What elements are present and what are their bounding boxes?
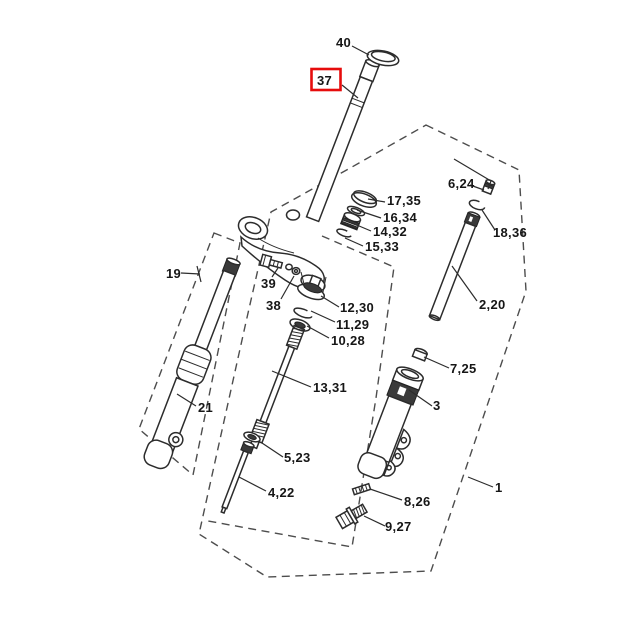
leader-10-28	[307, 326, 329, 338]
part-label-18-36[interactable]: 18,36	[493, 225, 527, 240]
rebound-rod-drawing	[217, 440, 254, 514]
part-label-8-26[interactable]: 8,26	[404, 494, 431, 509]
bearing-clip-drawing	[293, 306, 313, 320]
leader-15-33	[345, 238, 363, 246]
part-label-9-27[interactable]: 9,27	[385, 519, 412, 534]
slide-bushing-drawing	[412, 347, 428, 361]
part-label-1[interactable]: 1	[495, 480, 503, 495]
leader-40	[352, 46, 369, 55]
part-label-17-35[interactable]: 17,35	[387, 193, 421, 208]
part-label-21[interactable]: 21	[198, 400, 213, 415]
part-label-10-28[interactable]: 10,28	[331, 333, 365, 348]
part-label-16-34[interactable]: 16,34	[383, 210, 418, 225]
left-fork-drawing	[142, 254, 251, 473]
part-label-12-30[interactable]: 12,30	[340, 300, 374, 315]
part-label-37[interactable]: 37	[317, 73, 332, 88]
part-label-11-29[interactable]: 11,29	[336, 317, 369, 332]
part-label-3[interactable]: 3	[433, 398, 441, 413]
leader-16-34	[357, 210, 381, 218]
part-label-19[interactable]: 19	[166, 266, 181, 281]
part-label-38[interactable]: 38	[266, 298, 281, 313]
leader-11-29	[311, 311, 335, 322]
part-label-15-33[interactable]: 15,33	[365, 239, 399, 254]
damper-rod-drawing	[247, 325, 305, 449]
leader-4-22	[239, 477, 266, 491]
leader-12-30	[321, 296, 339, 307]
leader-2-20	[452, 266, 477, 301]
parts-diagram-canvas: 40 37 17,35 16,34 14,32 15,33 6,24 18,36…	[0, 0, 640, 640]
exploded-view-drawing: 40 37 17,35 16,34 14,32 15,33 6,24 18,36…	[0, 0, 640, 640]
part-label-2-20[interactable]: 2,20	[479, 297, 506, 312]
inner-tube-right-drawing	[428, 211, 481, 322]
leader-5-23	[262, 443, 283, 457]
outer-tube-right-drawing	[356, 364, 435, 486]
leader-9-27	[364, 516, 385, 526]
part-label-6-24[interactable]: 6,24	[448, 176, 475, 191]
part-label-40[interactable]: 40	[336, 35, 351, 50]
part-label-14-32[interactable]: 14,32	[373, 224, 407, 239]
snap-ring-drawing	[468, 198, 486, 211]
drain-bolt-drawing	[335, 501, 369, 530]
part-label-5-23[interactable]: 5,23	[284, 450, 311, 465]
part-label-4-22[interactable]: 4,22	[268, 485, 295, 500]
leader-1	[468, 477, 493, 487]
part-label-13-31[interactable]: 13,31	[313, 380, 347, 395]
leader-19	[181, 273, 200, 274]
small-clip-drawing	[336, 228, 352, 239]
part-label-7-25[interactable]: 7,25	[450, 361, 477, 376]
leader-8-26	[370, 489, 402, 500]
leader-7-25	[424, 357, 449, 368]
part-label-39[interactable]: 39	[261, 276, 276, 291]
